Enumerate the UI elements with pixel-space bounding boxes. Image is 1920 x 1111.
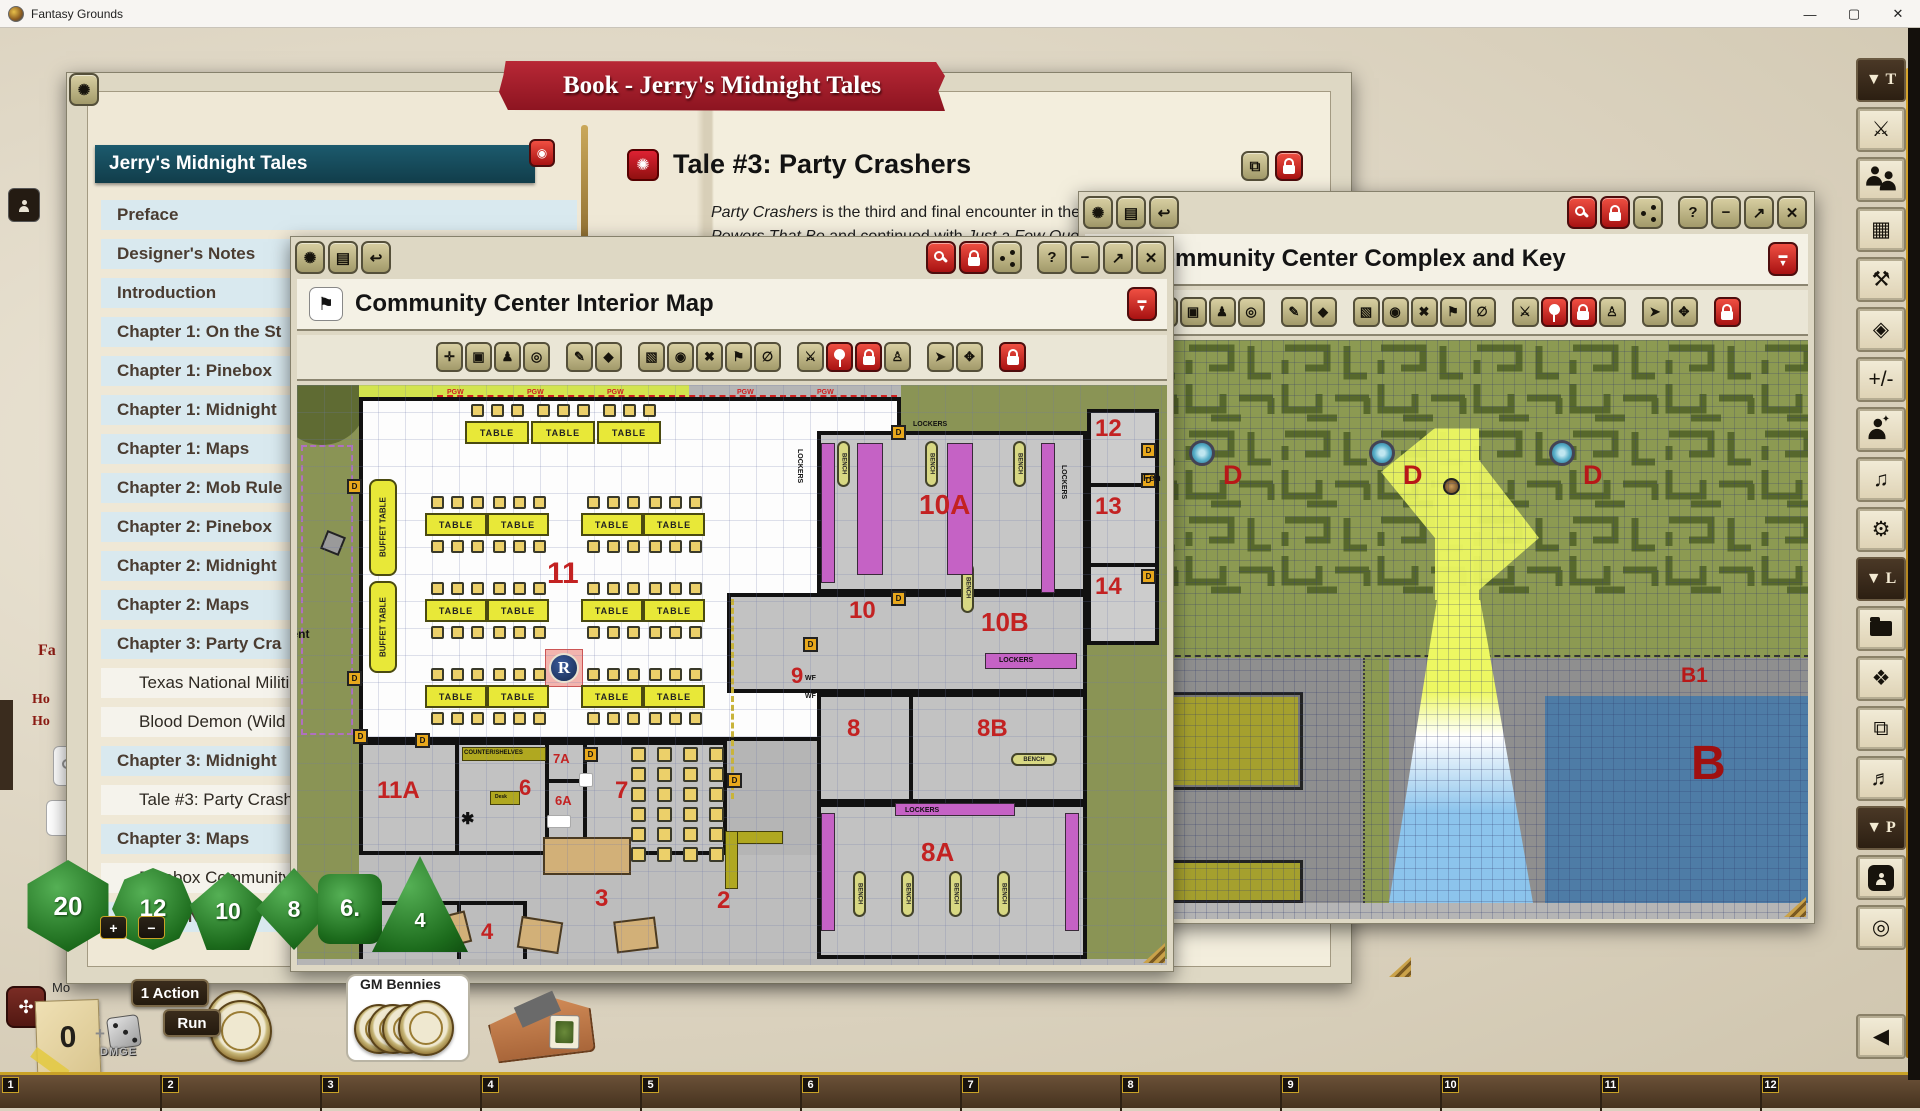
map-label: PGW [737,389,754,396]
card-deck-shoe[interactable] [483,974,596,1070]
map-chair [513,712,526,725]
map-toolbar: ✛▣♟◎✎◆▧◉✖⚑∅⚔♙➤✥ [1085,290,1808,336]
map-chair [689,582,702,595]
map-chair [709,787,724,802]
map-lock-icon [1007,356,1019,365]
book-icon[interactable]: ▤ [328,241,358,274]
tokens-button[interactable]: ◎ [1856,905,1906,950]
party-sheet-button[interactable] [1856,157,1906,202]
characters-button[interactable] [1856,855,1906,900]
map-label: 10A [919,489,970,521]
select-icon[interactable]: ▧ [1353,297,1380,327]
map-table: TABLE [643,513,705,536]
map-chair [627,540,640,553]
map-chair [557,404,570,417]
lock-icon [1609,212,1621,221]
os-close-button[interactable]: ✕ [1876,0,1920,28]
story-lock-button[interactable] [1275,151,1303,181]
map-label: PGW [527,389,544,396]
map-chair [431,496,444,509]
move-icon[interactable]: ✥ [956,342,983,372]
map-chair [627,668,640,681]
toc-item[interactable]: Preface [101,200,577,230]
map-label: D [1403,460,1423,491]
person-icon [19,206,29,212]
d6-die[interactable]: 6. [318,874,382,944]
hidden-label-fa: Fa [38,642,56,660]
door-marker: D [353,729,368,744]
action-button[interactable]: 1 Action [131,979,209,1007]
hotbar-slot-number[interactable]: 5 [642,1077,659,1093]
map-chair [533,496,546,509]
door-marker: D [415,733,430,748]
maximize-button[interactable]: ↗ [1744,196,1774,229]
map-chair [683,847,698,862]
dice-minus-button[interactable]: − [138,916,165,939]
pin-icon[interactable] [1541,297,1568,327]
map-label: 4 [481,919,493,945]
map-label: 11 [547,557,579,591]
map-chair [627,712,640,725]
maximize-button[interactable]: ↗ [1103,241,1133,274]
map-table: TABLE [425,685,487,708]
zoom-icon [1575,206,1585,216]
help-button[interactable]: ? [1678,196,1708,229]
map-chair [649,712,662,725]
map-chair [657,827,672,842]
map-chair [431,668,444,681]
library-section-header[interactable]: ▼ L [1856,557,1906,601]
map-table: TABLE [581,599,643,622]
complex-map-canvas[interactable]: DDDB1B [1085,340,1808,919]
audio-button[interactable]: ♬ [1856,756,1906,801]
token-vision-icon[interactable]: ♙ [884,342,911,372]
map-bench: BENCH [837,441,850,487]
map-chair [709,827,724,842]
bookmark-tassel [581,125,588,253]
library-button[interactable] [1856,606,1906,651]
map-chair [709,807,724,822]
zoom-icon[interactable] [926,241,956,274]
hidden-label-ho2: Ho [32,714,50,730]
door-marker: D [1141,569,1156,584]
map-chair [607,668,620,681]
map-label: 8A [921,837,954,868]
map-chair [649,668,662,681]
toc-close-button[interactable]: ◉ [529,139,555,167]
player-section-header[interactable]: ▼ P [1856,806,1906,850]
map-chair [627,582,640,595]
map-chair [513,540,526,553]
close-button[interactable]: ✕ [1136,241,1166,274]
minimize-button[interactable]: − [1711,196,1741,229]
map-chair [587,496,600,509]
map-label: 3 [595,885,608,913]
map-chair [431,540,444,553]
map-chair [451,712,464,725]
undo-icon[interactable]: ↩ [1149,196,1179,229]
camera-icon[interactable]: ▣ [465,342,492,372]
map-table: TABLE [487,685,549,708]
story-title: Tale #3: Party Crashers [673,149,971,180]
os-minimize-button[interactable]: — [1788,0,1832,28]
map-label: 12 [1095,415,1122,443]
map-lockers [857,443,883,575]
file-box [547,815,571,828]
map-label: ✱ [461,809,474,829]
lock-icon [1283,165,1295,174]
map-chair [631,807,646,822]
character-token[interactable]: R [549,653,579,683]
map-chair [683,767,698,782]
map-chair [649,496,662,509]
map-label: LOCKERS [905,807,939,814]
draw-icon[interactable]: ✎ [566,342,593,372]
door-marker: D [891,591,906,606]
map-lockers [821,813,835,931]
close-button[interactable]: ✕ [1777,196,1807,229]
combat-icon[interactable]: ⚔ [1512,297,1539,327]
flag-icon[interactable]: ⚑ [725,342,752,372]
copy-button[interactable]: ⧉ [1241,151,1269,181]
map-chair [607,496,620,509]
map-chair [493,712,506,725]
gm-benny-4[interactable] [398,1000,454,1056]
map-chair [431,582,444,595]
map-record-icon: ⚑ [309,287,343,321]
share-icon[interactable] [1633,196,1663,229]
map-label: COUNTER/SHELVES [464,750,523,756]
map-chair [471,712,484,725]
bullseye-icon[interactable]: ◉ [667,342,694,372]
door-marker: D [803,637,818,652]
hotbar-slot-number[interactable]: 8 [1122,1077,1139,1093]
combat-tracker-button[interactable]: ⚔ [1856,107,1906,152]
app-title: Fantasy Grounds [31,7,123,21]
map-chair [607,712,620,725]
unlock-token-icon [863,356,875,365]
map-label: 10 [849,597,876,625]
map-chair [657,847,672,862]
hotbar-slot-number[interactable]: 12 [1762,1077,1779,1093]
hotbar-slot-number[interactable]: 9 [1282,1077,1299,1093]
map-chair [451,540,464,553]
map-table: TABLE [643,599,705,622]
remove-icon[interactable]: ✖ [1411,297,1438,327]
os-titlebar: Fantasy Grounds — ▢ ✕ [0,0,1920,28]
map-chair [669,626,682,639]
undo-icon[interactable]: ↩ [361,241,391,274]
map-label: 6 [519,775,531,801]
fountain-marker [1189,440,1215,466]
map-label: LOCKERS [913,421,947,428]
minimize-button[interactable]: − [1070,241,1100,274]
book-icon[interactable]: ▤ [1116,196,1146,229]
map-bench: BENCH [1011,753,1057,766]
damage-plus: + [95,1024,105,1044]
token-vision-icon[interactable]: ♙ [1599,297,1626,327]
combat-icon[interactable]: ⚔ [797,342,824,372]
map-menu-button[interactable]: ▬▼ [1127,287,1157,321]
hotbar[interactable]: 123456789101112 [0,1072,1920,1108]
images-button[interactable]: ⧉ [1856,706,1906,751]
map-chair [537,404,550,417]
character-mini-button[interactable] [8,188,40,222]
hotbar-slot-number[interactable]: 1 [2,1077,19,1093]
window-chrome-right: ?−↗✕ [926,241,1169,274]
select-icon[interactable]: ▧ [638,342,665,372]
share-icon [1640,205,1656,221]
map-chair [493,626,506,639]
map-label: LOCKERS [796,449,803,483]
hotbar-slot-number[interactable]: 11 [1602,1077,1619,1093]
screen-edge [1908,28,1920,1080]
map-label: Tent [297,627,309,641]
door-marker: D [1141,443,1156,458]
map-chair [577,404,590,417]
map-label: D [1583,460,1603,491]
map-label: 7 [615,777,628,805]
map-chair [493,668,506,681]
hotbar-slot-number[interactable]: 10 [1442,1077,1459,1093]
map-chair [627,626,640,639]
map-chair [643,404,656,417]
map-chair [683,827,698,842]
map-label: B [1691,736,1726,791]
modifier-total-note[interactable]: 0 [35,999,102,1077]
map-chair [533,712,546,725]
map-chair [709,767,724,782]
map-label: PGW [447,389,464,396]
map-table: BUFFET TABLE [369,581,397,673]
map-lock-icon[interactable] [1714,297,1741,327]
unlock-token-icon[interactable] [855,342,882,372]
map-chair [689,712,702,725]
map-chair [603,404,616,417]
book-resize-handle[interactable] [1389,957,1411,977]
target-icon[interactable]: ◎ [523,342,550,372]
map-label: LOCKERS [1060,465,1067,499]
bullseye-icon[interactable]: ◉ [1382,297,1409,327]
map-chair [669,668,682,681]
window-chrome-left: ✺▤↩ [295,241,394,274]
map-chair [649,540,662,553]
pin-icon [1549,304,1560,315]
map-lock-icon[interactable] [999,342,1026,372]
map-chair [451,496,464,509]
map-chair [493,582,506,595]
unlock-token-icon[interactable] [1570,297,1597,327]
hotbar-slot-number[interactable]: 7 [962,1077,979,1093]
map-chair [631,847,646,862]
map-bench: BENCH [925,441,938,487]
null-icon[interactable]: ∅ [1469,297,1496,327]
map-chair [451,668,464,681]
map-bench: BENCH [997,871,1010,917]
map-table: TABLE [581,685,643,708]
map-label: LOCKERS [999,657,1033,664]
pointer-icon[interactable]: ➤ [927,342,954,372]
map-chair [607,582,620,595]
run-button[interactable]: Run [163,1009,221,1037]
map-lockers [821,443,835,583]
help-button[interactable]: ? [1037,241,1067,274]
map-chair [657,787,672,802]
player-view-icon[interactable]: ♟ [1209,297,1236,327]
share-icon[interactable] [992,241,1022,274]
s-box [579,773,593,787]
hotbar-slot-number[interactable]: 6 [802,1077,819,1093]
story-icon: ✺ [627,149,659,181]
map-chair [631,827,646,842]
map-title-row: ⚑ Community Center Interior Map ▬▼ [297,279,1167,331]
map-label: 14 [1095,573,1122,601]
fg-logo-button[interactable]: ✺ [69,73,99,106]
map-label: 9 [791,663,803,689]
calendar-button[interactable]: ▦ [1856,207,1906,252]
hotbar-slot-number[interactable]: 3 [322,1077,339,1093]
map-label: 10B [981,607,1029,638]
map-table: TABLE [597,421,661,444]
map-chair [513,496,526,509]
modules-button[interactable]: ❖ [1856,656,1906,701]
map-chair [513,668,526,681]
damage-word: DMGE [100,1046,137,1058]
door-marker: D [727,773,742,788]
map-chair [689,540,702,553]
dice-plus-button[interactable]: + [100,916,127,939]
map-menu-button[interactable]: ▬▼ [1768,242,1798,276]
map-chair [709,747,724,762]
lock-icon[interactable] [1600,196,1630,229]
door-marker: D [347,479,362,494]
map-label: WF [805,675,816,682]
map-chair [669,540,682,553]
map-chair [669,582,682,595]
map-chair [493,540,506,553]
map-chair [669,712,682,725]
map-chair [587,668,600,681]
map-chair [513,626,526,639]
map-chair [627,496,640,509]
os-maximize-button[interactable]: ▢ [1832,0,1876,28]
hidden-label-ho1: Ho [32,692,50,708]
map-table: TABLE [487,513,549,536]
lock-icon[interactable] [959,241,989,274]
flag-icon[interactable]: ⚑ [1440,297,1467,327]
eraser-icon[interactable]: ◆ [1310,297,1337,327]
map-label: 2 [717,887,730,915]
map-title: Community Center Interior Map [355,290,714,318]
settings-button[interactable]: ⚙ [1856,507,1906,552]
draw-icon[interactable]: ✎ [1281,297,1308,327]
damage-die-icon[interactable] [106,1014,142,1050]
door-marker: D [583,747,598,762]
dice-tower-button[interactable]: ◈ [1856,307,1906,352]
map-table: TABLE [643,685,705,708]
map-chair [533,582,546,595]
map-label: 8B [977,715,1008,743]
map-table: TABLE [465,421,529,444]
map-table: TABLE [581,513,643,536]
map-label: Fen [1143,473,1161,484]
pin-icon [834,349,845,360]
map-chair [533,540,546,553]
book-banner[interactable]: Book - Jerry's Midnight Tales [499,61,945,111]
fg-logo-icon[interactable]: ✺ [295,241,325,274]
map-chair [451,582,464,595]
options-button[interactable]: ⚒ [1856,257,1906,302]
fg-logo-icon[interactable]: ✺ [1083,196,1113,229]
desktop: Fa Ho Ho Book - Jerry's Midnight Tales ✺… [0,28,1920,1080]
map-chair [689,626,702,639]
action-card[interactable] [549,1015,580,1050]
hotbar-slot-number[interactable]: 4 [482,1077,499,1093]
map-chair [587,626,600,639]
fit-icon[interactable]: ✛ [436,342,463,372]
remove-icon[interactable]: ✖ [696,342,723,372]
hidden-window-edge [0,700,13,790]
map-label: 13 [1095,493,1122,521]
sidebar: ▼ T⚔▦⚒◈+/-✦♫⚙▼ L❖⧉♬▼ P◎◀ [1856,58,1908,1104]
pointer-icon[interactable]: ➤ [1642,297,1669,327]
map-label: D [1223,460,1243,491]
modifiers-button[interactable]: +/- [1856,357,1906,402]
gm-bennies-label: GM Bennies [360,976,441,992]
null-icon[interactable]: ∅ [754,342,781,372]
map-label: 8 [847,715,860,743]
move-icon[interactable]: ✥ [1671,297,1698,327]
map-chair [513,582,526,595]
hotbar-slot-number[interactable]: 2 [162,1077,179,1093]
map-chair [657,807,672,822]
map-chair [471,404,484,417]
map-chair [631,787,646,802]
map-label: 7A [553,751,570,766]
map-chair [431,712,444,725]
tools-section-header[interactable]: ▼ T [1856,58,1906,102]
zoom-icon [934,251,944,261]
map-chair [471,626,484,639]
map-lock-icon [1721,311,1733,320]
collapse-sidebar-button[interactable]: ◀ [1856,1014,1906,1059]
pin-icon[interactable] [826,342,853,372]
camera-icon[interactable]: ▣ [1180,297,1207,327]
fountain-marker [1369,440,1395,466]
map-label: Desk [495,794,507,800]
map-label: 6A [555,793,572,808]
effects-button[interactable]: ✦ [1856,407,1906,452]
map-bench: BENCH [901,871,914,917]
sound-button[interactable]: ♫ [1856,457,1906,502]
map-label: WF [805,693,816,700]
share-icon [999,250,1015,266]
map-chair [657,747,672,762]
map-title: Community Center Complex and Key [1143,245,1566,273]
map-chair [511,404,524,417]
window-chrome-left: ✺▤↩ [1083,196,1182,229]
map-chair [587,582,600,595]
target-icon[interactable]: ◎ [1238,297,1265,327]
player-view-icon[interactable]: ♟ [494,342,521,372]
zoom-icon[interactable] [1567,196,1597,229]
eraser-icon[interactable]: ◆ [595,342,622,372]
map-chair [683,787,698,802]
map-chair [471,668,484,681]
map-toolbar: ✛▣♟◎✎◆▧◉✖⚑∅⚔♙➤✥ [297,335,1167,381]
map-label: B1 [1681,664,1708,688]
map-bench: BENCH [949,871,962,917]
